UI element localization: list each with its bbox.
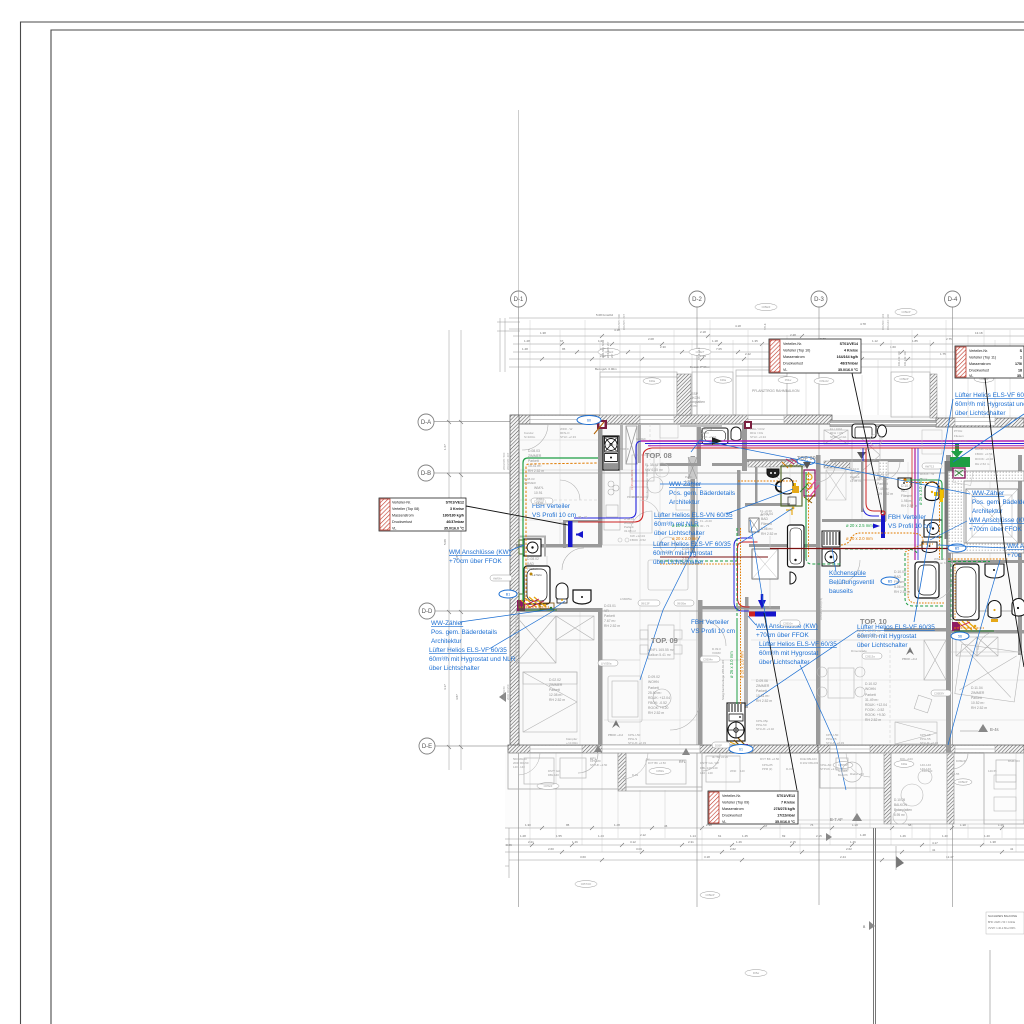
svg-text:C05T/CF: C05T/CF — [581, 882, 592, 886]
svg-text:D-B: D-B — [421, 471, 431, 477]
svg-text:1.46: 1.46 — [572, 840, 578, 844]
svg-text:61: 61 — [718, 834, 722, 838]
svg-text:D05/9F PPH (0.5): D05/9F PPH (0.5) — [819, 598, 823, 620]
svg-text:1.45: 1.45 — [742, 834, 748, 838]
svg-text:STLK +2.0A: STLK +2.0A — [830, 435, 846, 439]
svg-text:Verteiler-Nr.: Verteiler-Nr. — [392, 501, 411, 505]
svg-text:STLUK +2.33: STLUK +2.33 — [628, 741, 646, 745]
svg-text:60m³/h mit Hygrostat und NLR: 60m³/h mit Hygrostat und NLR — [429, 656, 516, 663]
svg-text:3 Kreise: 3 Kreise — [450, 507, 464, 511]
svg-text:R0L50F: 103: R0L50F: 103 — [881, 313, 885, 330]
svg-text:7.05: 7.05 — [716, 347, 722, 351]
svg-text:TOP. 09: TOP. 09 — [651, 636, 678, 645]
svg-text:69: 69 — [782, 834, 786, 838]
svg-text:ø 20 x 2.0 mm: ø 20 x 2.0 mm — [740, 651, 745, 678]
svg-text:1.75: 1.75 — [940, 352, 946, 356]
svg-text:D-2: D-2 — [692, 297, 702, 303]
svg-text:1.46: 1.46 — [736, 840, 742, 844]
svg-text:10.52 m²: 10.52 m² — [971, 701, 985, 705]
svg-text:NACHWEIS BALKONE: NACHWEIS BALKONE — [988, 914, 1017, 918]
svg-text:Druckverlust: Druckverlust — [722, 814, 742, 818]
svg-text:10.91: 10.91 — [534, 491, 543, 495]
svg-text:ST01/VE13: ST01/VE13 — [777, 794, 795, 798]
svg-text:D:202 KBL203: D:202 KBL203 — [800, 761, 819, 765]
svg-text:Druckverlust: Druckverlust — [969, 369, 989, 373]
svg-text:DVT BK +2.50: DVT BK +2.50 — [648, 761, 666, 765]
svg-text:Lüfter Helios ELS-VN 60/35: Lüfter Helios ELS-VN 60/35 — [654, 512, 733, 519]
svg-text:278/278 kg/h: 278/278 kg/h — [774, 807, 795, 811]
svg-text:VL: VL — [722, 820, 726, 824]
svg-text:RH 2.52 m: RH 2.52 m — [682, 562, 698, 566]
svg-text:1.40: 1.40 — [984, 834, 990, 838]
svg-text:D.10.03: D.10.03 — [901, 484, 913, 488]
svg-text:D-4: D-4 — [948, 297, 958, 303]
svg-text:46/37mbar: 46/37mbar — [446, 520, 464, 524]
svg-text:Parkett: Parkett — [865, 693, 876, 697]
svg-text:STLUK +2.33: STLUK +2.33 — [920, 741, 938, 745]
svg-text:WOHN: WOHN — [865, 687, 876, 691]
svg-text:3.60: 3.60 — [580, 855, 586, 859]
svg-text:ZIMMER: ZIMMER — [971, 691, 985, 695]
svg-text:D-3: D-3 — [814, 297, 824, 303]
svg-text:DVT BK +2.50: DVT BK +2.50 — [760, 757, 780, 761]
svg-text:30 - 71: 30 - 71 — [700, 524, 710, 528]
svg-text:140 - 140: 140 - 140 — [700, 771, 713, 775]
svg-text:Fliesen: Fliesen — [894, 580, 905, 584]
svg-text:FBOK: -0.52: FBOK: -0.52 — [648, 701, 667, 705]
svg-text:STLK: STLK — [920, 477, 928, 481]
svg-text:C05f/a: C05f/a — [656, 769, 664, 773]
svg-text:Balkon 5.41 m²: Balkon 5.41 m² — [648, 653, 672, 657]
svg-text:4.17: 4.17 — [443, 684, 447, 690]
svg-text:ROCK - W: ROCK - W — [920, 472, 934, 476]
svg-text:1.67: 1.67 — [443, 444, 447, 450]
svg-text:12.08 m²: 12.08 m² — [549, 693, 563, 697]
svg-text:18: 18 — [1018, 369, 1022, 373]
svg-text:35.0/16.0 °C: 35.0/16.0 °C — [444, 527, 464, 531]
svg-text:K09a: K09a — [649, 379, 656, 383]
svg-text:Verteiler-Nr.: Verteiler-Nr. — [969, 349, 988, 353]
svg-text:C05E/P: C05E/P — [900, 377, 909, 381]
svg-text:2.12: 2.12 — [640, 833, 646, 837]
svg-text:VL: VL — [392, 527, 396, 531]
svg-text:FBH Verteiler: FBH Verteiler — [888, 514, 927, 521]
svg-text:Pos. gem. Bädelde: Pos. gem. Bädelde — [972, 499, 1024, 506]
svg-text:Druckverlust: Druckverlust — [783, 362, 803, 366]
svg-text:BH0: 2228 x 50 = 1024a: BH0: 2228 x 50 = 1024a — [988, 921, 1016, 924]
svg-text:D-E: D-E — [422, 744, 432, 750]
svg-text:1: 1 — [1020, 356, 1022, 360]
svg-text:S=100m: S=100m — [524, 435, 536, 439]
svg-text:RH 2.52 m: RH 2.52 m — [971, 706, 987, 710]
svg-text:RFL: RFL — [679, 760, 686, 764]
svg-text:35.: 35. — [1017, 374, 1022, 378]
svg-text:STLUK +2.33: STLUK +2.33 — [826, 741, 844, 745]
svg-text:5.06 m²: 5.06 m² — [761, 527, 773, 531]
svg-text:2.15: 2.15 — [816, 834, 822, 838]
svg-text:1.46: 1.46 — [900, 834, 906, 838]
svg-text:D05P: D05P — [715, 744, 722, 748]
svg-text:bauseits: bauseits — [829, 588, 853, 595]
svg-text:PPM (2): PPM (2) — [762, 767, 772, 771]
svg-text:AR: AR — [682, 552, 687, 556]
svg-text:0F?8K +0.20: 0F?8K +0.20 — [712, 755, 729, 759]
svg-text:1.43: 1.43 — [598, 834, 604, 838]
svg-text:6.95 m²: 6.95 m² — [894, 813, 905, 817]
svg-text:C05E8Y: C05E8Y — [934, 692, 945, 696]
svg-text:31.08 m²: 31.08 m² — [624, 529, 636, 533]
svg-text:ZIMMER: ZIMMER — [524, 481, 537, 485]
svg-text:ø 26 x 3.0 mm: ø 26 x 3.0 mm — [918, 478, 923, 505]
svg-text:60m³/h mit Hygrostat und: 60m³/h mit Hygrostat und — [955, 401, 1024, 408]
svg-text:STLK: STLK — [763, 323, 767, 330]
svg-text:STLUK +3.32: STLUK +3.32 — [756, 727, 774, 731]
svg-text:DessIn P*06 m: DessIn P*06 m — [690, 365, 711, 369]
svg-text:1.18: 1.18 — [712, 339, 718, 343]
svg-text:4.17: 4.17 — [932, 841, 938, 845]
svg-text:35.0/16.0 °C: 35.0/16.0 °C — [775, 820, 795, 824]
svg-text:WNFL 42.25 m²: WNFL 42.25 m² — [857, 629, 882, 633]
svg-text:R0L505: 207: R0L505: 207 — [622, 314, 626, 330]
svg-text:FBOK -0.52: FBOK -0.52 — [630, 538, 646, 542]
svg-text:D.08.02: D.08.02 — [527, 557, 539, 561]
svg-text:Parkett: Parkett — [528, 459, 539, 463]
svg-text:über Lichtschalter: über Lichtschalter — [857, 642, 908, 649]
svg-text:K09a: K09a — [901, 762, 908, 766]
svg-text:Parkett: Parkett — [648, 686, 659, 690]
svg-text:WW-Zähler: WW-Zähler — [431, 620, 464, 627]
svg-text:2.44: 2.44 — [840, 855, 846, 859]
svg-text:Fliesen: Fliesen — [527, 567, 538, 571]
svg-text:D.09.06: D.09.06 — [756, 679, 768, 683]
svg-text:RDUK: +1.04: RDUK: +1.04 — [975, 447, 993, 451]
svg-text:RH 2.52 m: RH 2.52 m — [756, 699, 772, 703]
svg-text:2.62: 2.62 — [730, 847, 736, 851]
svg-text:D-03: D-03 — [786, 767, 793, 771]
svg-text:VS Profil 10 cm: VS Profil 10 cm — [888, 523, 932, 530]
svg-text:AW06+: AW06+ — [493, 577, 503, 581]
svg-text:09/05w: 09/05w — [677, 602, 687, 606]
svg-text:95: 95 — [562, 347, 566, 351]
svg-text:Massenstrom: Massenstrom — [722, 807, 744, 811]
svg-text:1.46: 1.46 — [850, 840, 856, 844]
svg-text:Verteiler (Top 08): Verteiler (Top 08) — [392, 507, 419, 511]
svg-text:ROOK: +0.04: ROOK: +0.04 — [975, 457, 993, 461]
svg-text:Massenstrom: Massenstrom — [783, 355, 805, 359]
svg-text:+70c: +70c — [1007, 552, 1022, 559]
svg-text:F05w: F05w — [753, 971, 759, 975]
svg-text:BAD: BAD — [527, 562, 535, 566]
svg-text:C05E/P: C05E/P — [902, 310, 911, 314]
svg-text:2.75: 2.75 — [946, 337, 952, 341]
svg-text:WW-Zähler: WW-Zähler — [972, 490, 1005, 497]
svg-text:WM A: WM A — [1007, 543, 1024, 550]
svg-text:DS?T GA, WP: DS?T GA, WP — [700, 761, 719, 765]
svg-text:1.28: 1.28 — [524, 339, 530, 343]
svg-text:ST01/VE12: ST01/VE12 — [446, 501, 464, 505]
svg-text:ø 20 x 2.0 mm: ø 20 x 2.0 mm — [846, 536, 873, 541]
svg-text:Parkett: Parkett — [756, 689, 767, 693]
svg-text:Küchenspüle: Küchenspüle — [829, 570, 866, 577]
svg-text:140-140: 140-140 — [922, 769, 933, 773]
svg-text:2.08: 2.08 — [648, 337, 654, 341]
svg-text:1.12: 1.12 — [872, 339, 878, 343]
svg-text:RDUK: +12.04: RDUK: +12.04 — [648, 696, 670, 700]
svg-text:STLK +2.0: STLK +2.0 — [697, 347, 701, 360]
svg-text:60m³/h mit NLR: 60m³/h mit NLR — [654, 521, 699, 528]
svg-text:ZIMMER: ZIMMER — [549, 683, 563, 687]
svg-text:VVSH: 1.40-2.80+2.80%: VVSH: 1.40-2.80+2.80% — [988, 927, 1016, 930]
svg-text:32: 32 — [560, 521, 564, 525]
svg-text:VR: VR — [604, 609, 609, 613]
svg-text:1.28: 1.28 — [520, 834, 526, 838]
svg-text:D.11.04: D.11.04 — [971, 686, 983, 690]
svg-text:Parkett: Parkett — [971, 696, 982, 700]
svg-text:TOP. 10: TOP. 10 — [860, 617, 887, 626]
svg-text:Pos. gem. Bäderdetails: Pos. gem. Bäderdetails — [431, 629, 497, 636]
svg-text:AW713: AW713 — [925, 465, 935, 469]
svg-text:175/: 175/ — [1015, 362, 1022, 366]
svg-text:WM Anschlüsse (KW): WM Anschlüsse (KW) — [449, 549, 511, 556]
svg-text:R0L505: 500: R0L505: 500 — [617, 314, 621, 330]
svg-text:D-A: D-A — [421, 420, 431, 426]
svg-text:Verteiler-Nr.: Verteiler-Nr. — [783, 342, 802, 346]
svg-text:1.48: 1.48 — [860, 833, 866, 837]
svg-text:Fliesen: Fliesen — [954, 434, 964, 438]
svg-text:C0513a: C0513a — [865, 655, 875, 659]
svg-text:DOL +103: DOL +103 — [900, 757, 913, 761]
svg-text:über Lichtschalter: über Lichtschalter — [955, 410, 1006, 417]
svg-text:P04w: P04w — [785, 378, 792, 382]
svg-text:Belüftungsventil: Belüftungsventil — [829, 579, 874, 586]
svg-text:RH 2.52 m: RH 2.52 m — [877, 492, 893, 496]
svg-text:1.35: 1.35 — [752, 339, 758, 343]
svg-text:C05E/F: C05E/F — [762, 305, 771, 309]
svg-text:WM Anschlüsse (KW: WM Anschlüsse (KW — [969, 517, 1024, 524]
svg-text:C07E/F: C07E/F — [544, 784, 553, 788]
svg-text:11.35 m²: 11.35 m² — [850, 479, 862, 483]
svg-text:D05E/P: D05E/P — [956, 759, 966, 763]
svg-text:ST01/VE14: ST01/VE14 — [840, 342, 858, 346]
svg-text:2.60: 2.60 — [548, 847, 554, 851]
svg-text:1.85: 1.85 — [912, 339, 918, 343]
svg-text:25.80 m²: 25.80 m² — [648, 691, 662, 695]
svg-text:5.08: 5.08 — [443, 539, 447, 545]
svg-text:D05E/P: D05E/P — [959, 780, 968, 784]
svg-text:5.06 m²: 5.06 m² — [894, 585, 906, 589]
svg-text:10.81 m²: 10.81 m² — [756, 694, 770, 698]
svg-text:2.83 m²: 2.83 m² — [682, 557, 694, 561]
svg-text:56: 56 — [958, 635, 962, 639]
svg-text:Betonplatten: Betonplatten — [894, 808, 912, 812]
svg-text:4.87: 4.87 — [455, 694, 459, 700]
svg-text:über Lichtschalter: über Lichtschalter — [654, 530, 705, 537]
svg-text:VS Profil 10 cm: VS Profil 10 cm — [691, 628, 735, 635]
svg-text:R0L143: 140: R0L143: 140 — [903, 351, 907, 366]
svg-text:STLK +3.34: STLK +3.34 — [750, 435, 766, 439]
svg-text:TOP. 08: TOP. 08 — [645, 451, 672, 460]
svg-text:+70cm über FFOK: +70cm über FFOK — [449, 558, 502, 565]
svg-text:ø 20 x 2.5 mm: ø 20 x 2.5 mm — [846, 523, 873, 528]
svg-text:Balkon 6.08 m: Balkon 6.08 m — [934, 561, 954, 565]
svg-text:TOP 09: TOP 09 — [860, 447, 871, 451]
svg-text:41: 41 — [932, 848, 936, 852]
svg-text:Lüfter Helios ELS-VF 60/35: Lüfter Helios ELS-VF 60/35 — [429, 647, 507, 654]
svg-text:Fliesen: Fliesen — [761, 522, 772, 526]
svg-text:VORR: VORR — [712, 651, 722, 655]
svg-text:LVM05w: LVM05w — [697, 608, 701, 620]
svg-text:207: 207 — [610, 353, 614, 358]
svg-text:+70cm über FFOK: +70cm über FFOK — [969, 526, 1022, 533]
svg-text:RDUK: +12.04: RDUK: +12.04 — [865, 703, 887, 707]
svg-text:2.31: 2.31 — [688, 840, 694, 844]
svg-text:36 - 71: 36 - 71 — [578, 515, 588, 519]
svg-text:LNM05w: LNM05w — [620, 597, 633, 601]
svg-text:LIV050a: LIV050a — [601, 662, 612, 666]
svg-text:D-1: D-1 — [514, 297, 524, 303]
svg-text:3.09: 3.09 — [636, 847, 642, 851]
svg-text:ZIMMER: ZIMMER — [756, 684, 770, 688]
svg-text:Dimensiade: Dimensiade — [851, 649, 867, 653]
svg-text:D.08.03: D.08.03 — [528, 449, 540, 453]
svg-text:Verteiler-Nr.: Verteiler-Nr. — [722, 794, 741, 798]
svg-text:13.18: 13.18 — [975, 331, 983, 335]
svg-text:30 - 71: 30 - 71 — [760, 513, 770, 517]
svg-text:Steig Kaminanlage 268-KL.06: Steig Kaminanlage 268-KL.06 — [721, 660, 725, 700]
svg-text:STLK +2.0A: STLK +2.0A — [700, 435, 716, 439]
svg-text:2.15: 2.15 — [790, 840, 796, 844]
svg-text:WOL505: 207: WOL505: 207 — [506, 452, 510, 470]
svg-text:FBOK: +0.54: FBOK: +0.54 — [975, 452, 993, 456]
svg-text:C0504e: C0504e — [703, 658, 713, 662]
svg-text:Massenstrom: Massenstrom — [969, 362, 991, 366]
svg-text:D.10.01: D.10.01 — [877, 472, 889, 476]
svg-text:Sehr Kommetzger K&AG. W: Sehr Kommetzger K&AG. W — [645, 464, 649, 500]
svg-text:48/37mbar: 48/37mbar — [840, 362, 858, 366]
svg-text:B-4s: B-4s — [990, 727, 999, 732]
svg-text:140-55: 140-55 — [950, 772, 960, 776]
svg-text:Verteiler (Top 09): Verteiler (Top 09) — [722, 801, 749, 805]
svg-text:PBOK +0.2: PBOK +0.2 — [902, 657, 917, 661]
svg-text:D.10.02: D.10.02 — [865, 682, 877, 686]
svg-text:WOLS05: 500: WOLS05: 500 — [601, 341, 605, 358]
svg-text:Balkon 6.08 m²: Balkon 6.08 m² — [857, 634, 881, 638]
svg-text:WOLS05: 207: WOLS05: 207 — [606, 341, 610, 358]
svg-text:WM?L: WM?L — [534, 486, 544, 490]
svg-text:ZIMMER: ZIMMER — [528, 454, 542, 458]
svg-text:1.38: 1.38 — [540, 331, 546, 335]
svg-text:WOHN: WOHN — [648, 680, 659, 684]
svg-text:über Lichtschalter: über Lichtschalter — [429, 665, 480, 672]
svg-text:D.03.01: D.03.01 — [604, 604, 616, 608]
svg-text:VS Profil 10 cm: VS Profil 10 cm — [532, 512, 576, 519]
svg-text:DBL 140: DBL 140 — [548, 773, 559, 777]
svg-text:2.21: 2.21 — [528, 840, 534, 844]
svg-text:1.55: 1.55 — [556, 834, 562, 838]
svg-text:D.10.05: D.10.05 — [894, 798, 905, 802]
svg-text:1.38: 1.38 — [990, 840, 996, 844]
svg-text:7.45 m²: 7.45 m² — [877, 487, 889, 491]
svg-text:PL 38.48 m²: PL 38.48 m² — [627, 495, 643, 499]
svg-text:09/13F: 09/13F — [641, 602, 650, 606]
svg-text:D.02.02: D.02.02 — [549, 678, 561, 682]
svg-text:D.10.04: D.10.04 — [894, 570, 906, 574]
svg-text:4.18: 4.18 — [735, 324, 741, 328]
svg-text:164/164 kg/h: 164/164 kg/h — [837, 355, 858, 359]
svg-text:Parkett: Parkett — [549, 688, 560, 692]
svg-text:7 Kreise: 7 Kreise — [781, 801, 795, 805]
svg-text:41: 41 — [1010, 847, 1014, 851]
svg-text:+/-0.00m: +/-0.00m — [566, 741, 578, 745]
svg-text:1.14: 1.14 — [690, 834, 696, 838]
svg-text:über Lichtschalter: über Lichtschalter — [759, 659, 810, 666]
svg-text:VR: VR — [877, 477, 882, 481]
svg-text:180/180 kg/h: 180/180 kg/h — [443, 514, 464, 518]
svg-text:STLK - W: STLK - W — [954, 439, 967, 443]
svg-text:Parkett: Parkett — [877, 482, 888, 486]
svg-text:7.67 m²: 7.67 m² — [604, 619, 616, 623]
svg-text:R0L143: 140: R0L143: 140 — [886, 314, 890, 330]
svg-text:RH 2.52 m: RH 2.52 m — [604, 624, 620, 628]
svg-text:Architektur: Architektur — [972, 508, 1003, 515]
svg-text:GdREF.: GdREF. — [636, 437, 647, 441]
svg-text:K09a: K09a — [720, 378, 727, 382]
svg-text:3.18: 3.18 — [704, 855, 710, 859]
svg-text:TOP 0: TOP 0 — [620, 447, 629, 451]
svg-text:RH 2.52 m: RH 2.52 m — [894, 590, 910, 594]
svg-text:BAD: BAD — [761, 517, 769, 521]
svg-text:+70cm über FFOK: +70cm über FFOK — [756, 632, 809, 639]
svg-text:Verteiler (Top 10): Verteiler (Top 10) — [783, 349, 810, 353]
svg-text:D.09.01: D.09.01 — [682, 547, 694, 551]
svg-text:RH 2.52 m: RH 2.52 m — [901, 504, 917, 508]
svg-text:ø 26 x 3.0 mm: ø 26 x 3.0 mm — [729, 651, 734, 678]
svg-text:5.08 bmwOd: 5.08 bmwOd — [596, 313, 613, 317]
svg-text:140: 140 — [740, 769, 745, 773]
svg-text:D-D: D-D — [422, 609, 433, 615]
svg-text:VL: VL — [969, 374, 973, 378]
svg-text:Fliesen: Fliesen — [901, 494, 912, 498]
svg-text:2.62: 2.62 — [846, 847, 852, 851]
svg-text:WC: WC — [901, 489, 907, 493]
svg-text:60: 60 — [587, 419, 591, 423]
svg-text:61: 61 — [739, 748, 743, 752]
svg-text:B1: B1 — [506, 593, 510, 597]
svg-text:200F R0L50: 200F R0L50 — [506, 684, 510, 700]
svg-text:1.98 m²: 1.98 m² — [901, 499, 913, 503]
svg-text:2.30: 2.30 — [660, 345, 666, 349]
svg-text:4.78: 4.78 — [860, 322, 866, 326]
svg-text:67: 67 — [560, 339, 564, 343]
svg-text:D.09.02: D.09.02 — [648, 675, 660, 679]
svg-text:Bezugsh. 0.00m: Bezugsh. 0.00m — [595, 367, 617, 371]
svg-text:140 - 140: 140 - 140 — [513, 765, 525, 769]
svg-text:RH 2.52 m: RH 2.52 m — [685, 483, 700, 487]
svg-text:PBOK +0.2: PBOK +0.2 — [608, 733, 623, 737]
svg-text:R0L143: 140: R0L143: 140 — [897, 351, 901, 366]
svg-text:1.48: 1.48 — [522, 347, 528, 351]
svg-text:B5: B5 — [888, 580, 892, 584]
svg-text:15.41 m²: 15.41 m² — [528, 464, 542, 468]
svg-text:RH 2.52 m: RH 2.52 m — [865, 718, 881, 722]
svg-text:Druckverlust: Druckverlust — [392, 520, 412, 524]
svg-text:Architektur: Architektur — [669, 499, 700, 506]
svg-text:2.18: 2.18 — [700, 330, 706, 334]
svg-text:VL 35.0 RL 30.71: VL 35.0 RL 30.71 — [630, 469, 634, 490]
svg-text:C05E/P: C05E/P — [706, 893, 715, 897]
svg-text:RH 2.52 m: RH 2.52 m — [648, 711, 664, 715]
svg-text:2.48: 2.48 — [790, 333, 796, 337]
